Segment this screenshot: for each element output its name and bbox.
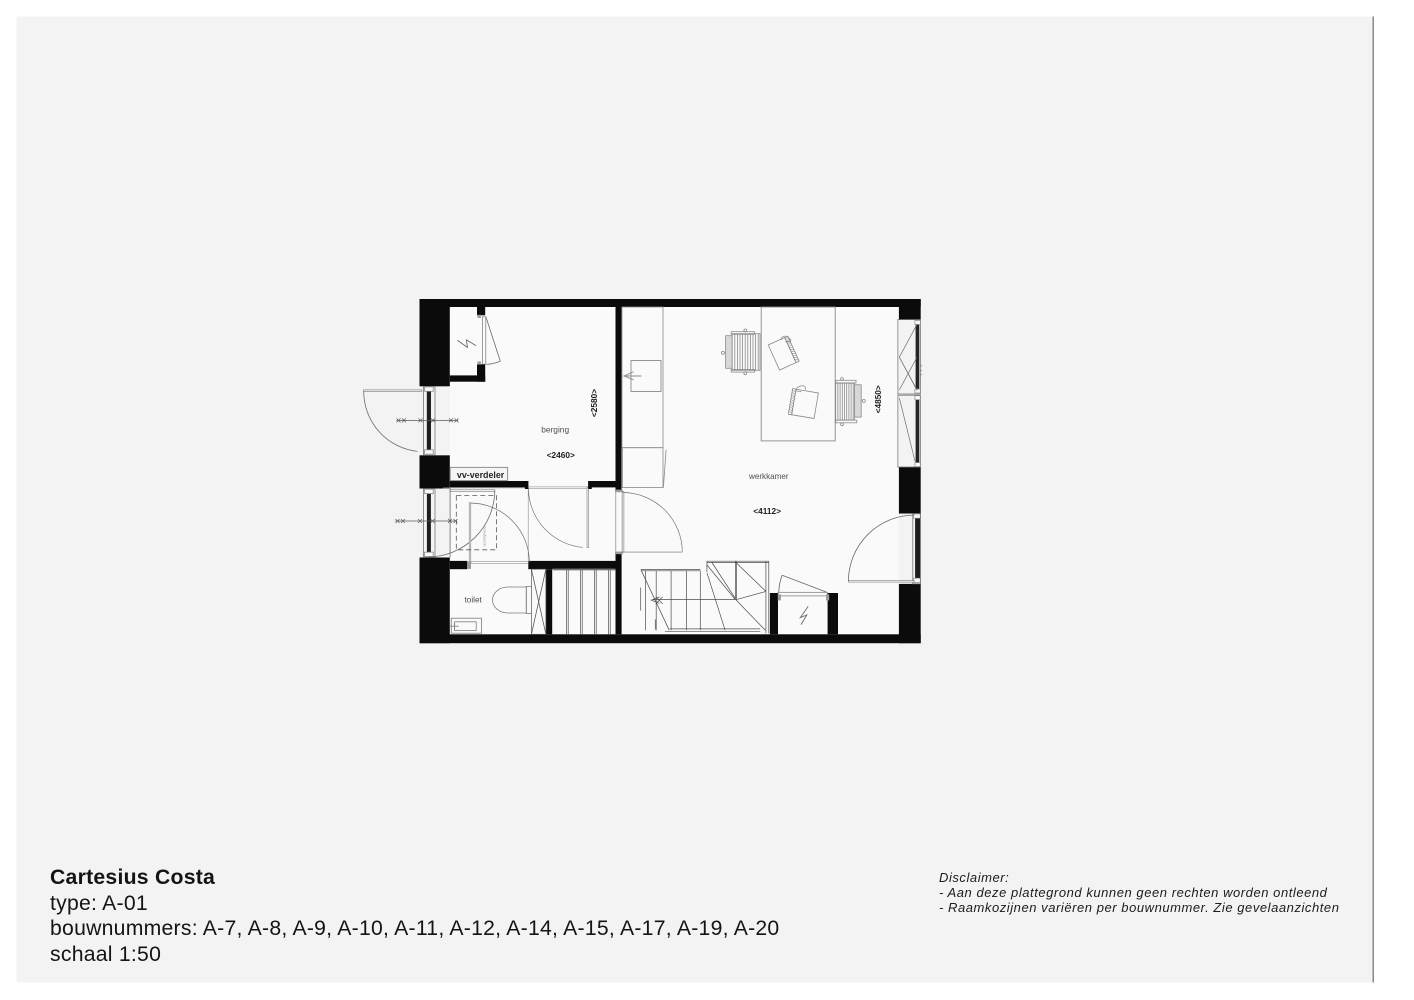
svg-text:opstelplaats: opstelplaats (482, 525, 487, 546)
svg-text:<2580>: <2580> (589, 389, 599, 417)
svg-text:berging: berging (541, 425, 569, 435)
svg-text:<2460>: <2460> (547, 450, 575, 460)
svg-text:<4850>: <4850> (873, 385, 883, 413)
svg-text:werkkamer: werkkamer (748, 472, 789, 481)
svg-text:toilet: toilet (465, 595, 483, 604)
svg-text:<4112>: <4112> (753, 506, 781, 516)
svg-text:vv-verdeler: vv-verdeler (457, 470, 505, 480)
